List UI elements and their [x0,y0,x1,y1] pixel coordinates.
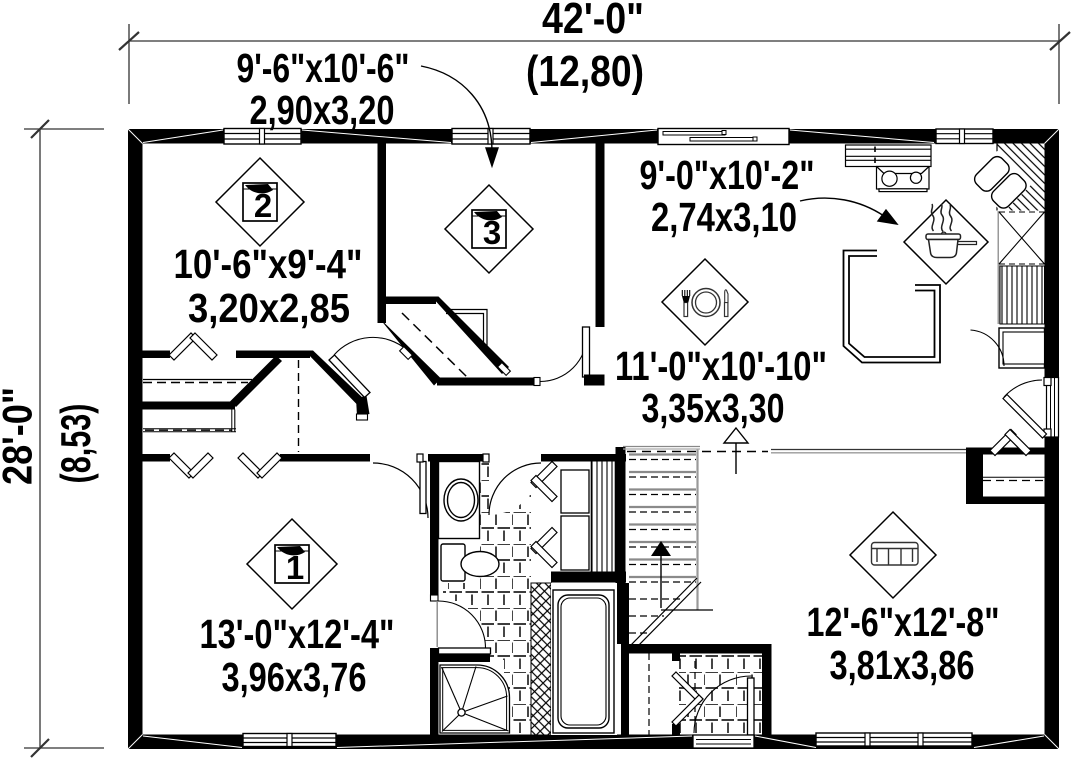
svg-text:11'-0"x10'-10": 11'-0"x10'-10" [615,343,827,389]
svg-text:10'-6"x9'-4": 10'-6"x9'-4" [174,241,363,287]
svg-text:9'-6"x10'-6": 9'-6"x10'-6" [237,45,410,91]
svg-text:9'-0"x10'-2": 9'-0"x10'-2" [640,152,815,198]
svg-text:42'-0": 42'-0" [542,0,644,43]
svg-text:2,74x3,10: 2,74x3,10 [651,194,797,240]
svg-text:28'-0": 28'-0" [0,387,41,485]
svg-text:3,96x3,76: 3,96x3,76 [222,654,367,700]
svg-text:3,20x2,85: 3,20x2,85 [188,285,350,331]
svg-text:(12,80): (12,80) [526,47,644,96]
svg-text:2: 2 [254,187,272,224]
svg-text:(8,53): (8,53) [52,404,99,484]
svg-text:12'-6"x12'-8": 12'-6"x12'-8" [807,599,1000,645]
svg-text:2,90x3,20: 2,90x3,20 [250,87,395,133]
svg-text:3,35x3,30: 3,35x3,30 [642,385,785,431]
svg-text:3: 3 [483,214,501,251]
svg-text:13'-0"x12'-4": 13'-0"x12'-4" [200,611,395,657]
svg-text:3,81x3,86: 3,81x3,86 [830,642,975,688]
svg-text:1: 1 [286,549,304,586]
